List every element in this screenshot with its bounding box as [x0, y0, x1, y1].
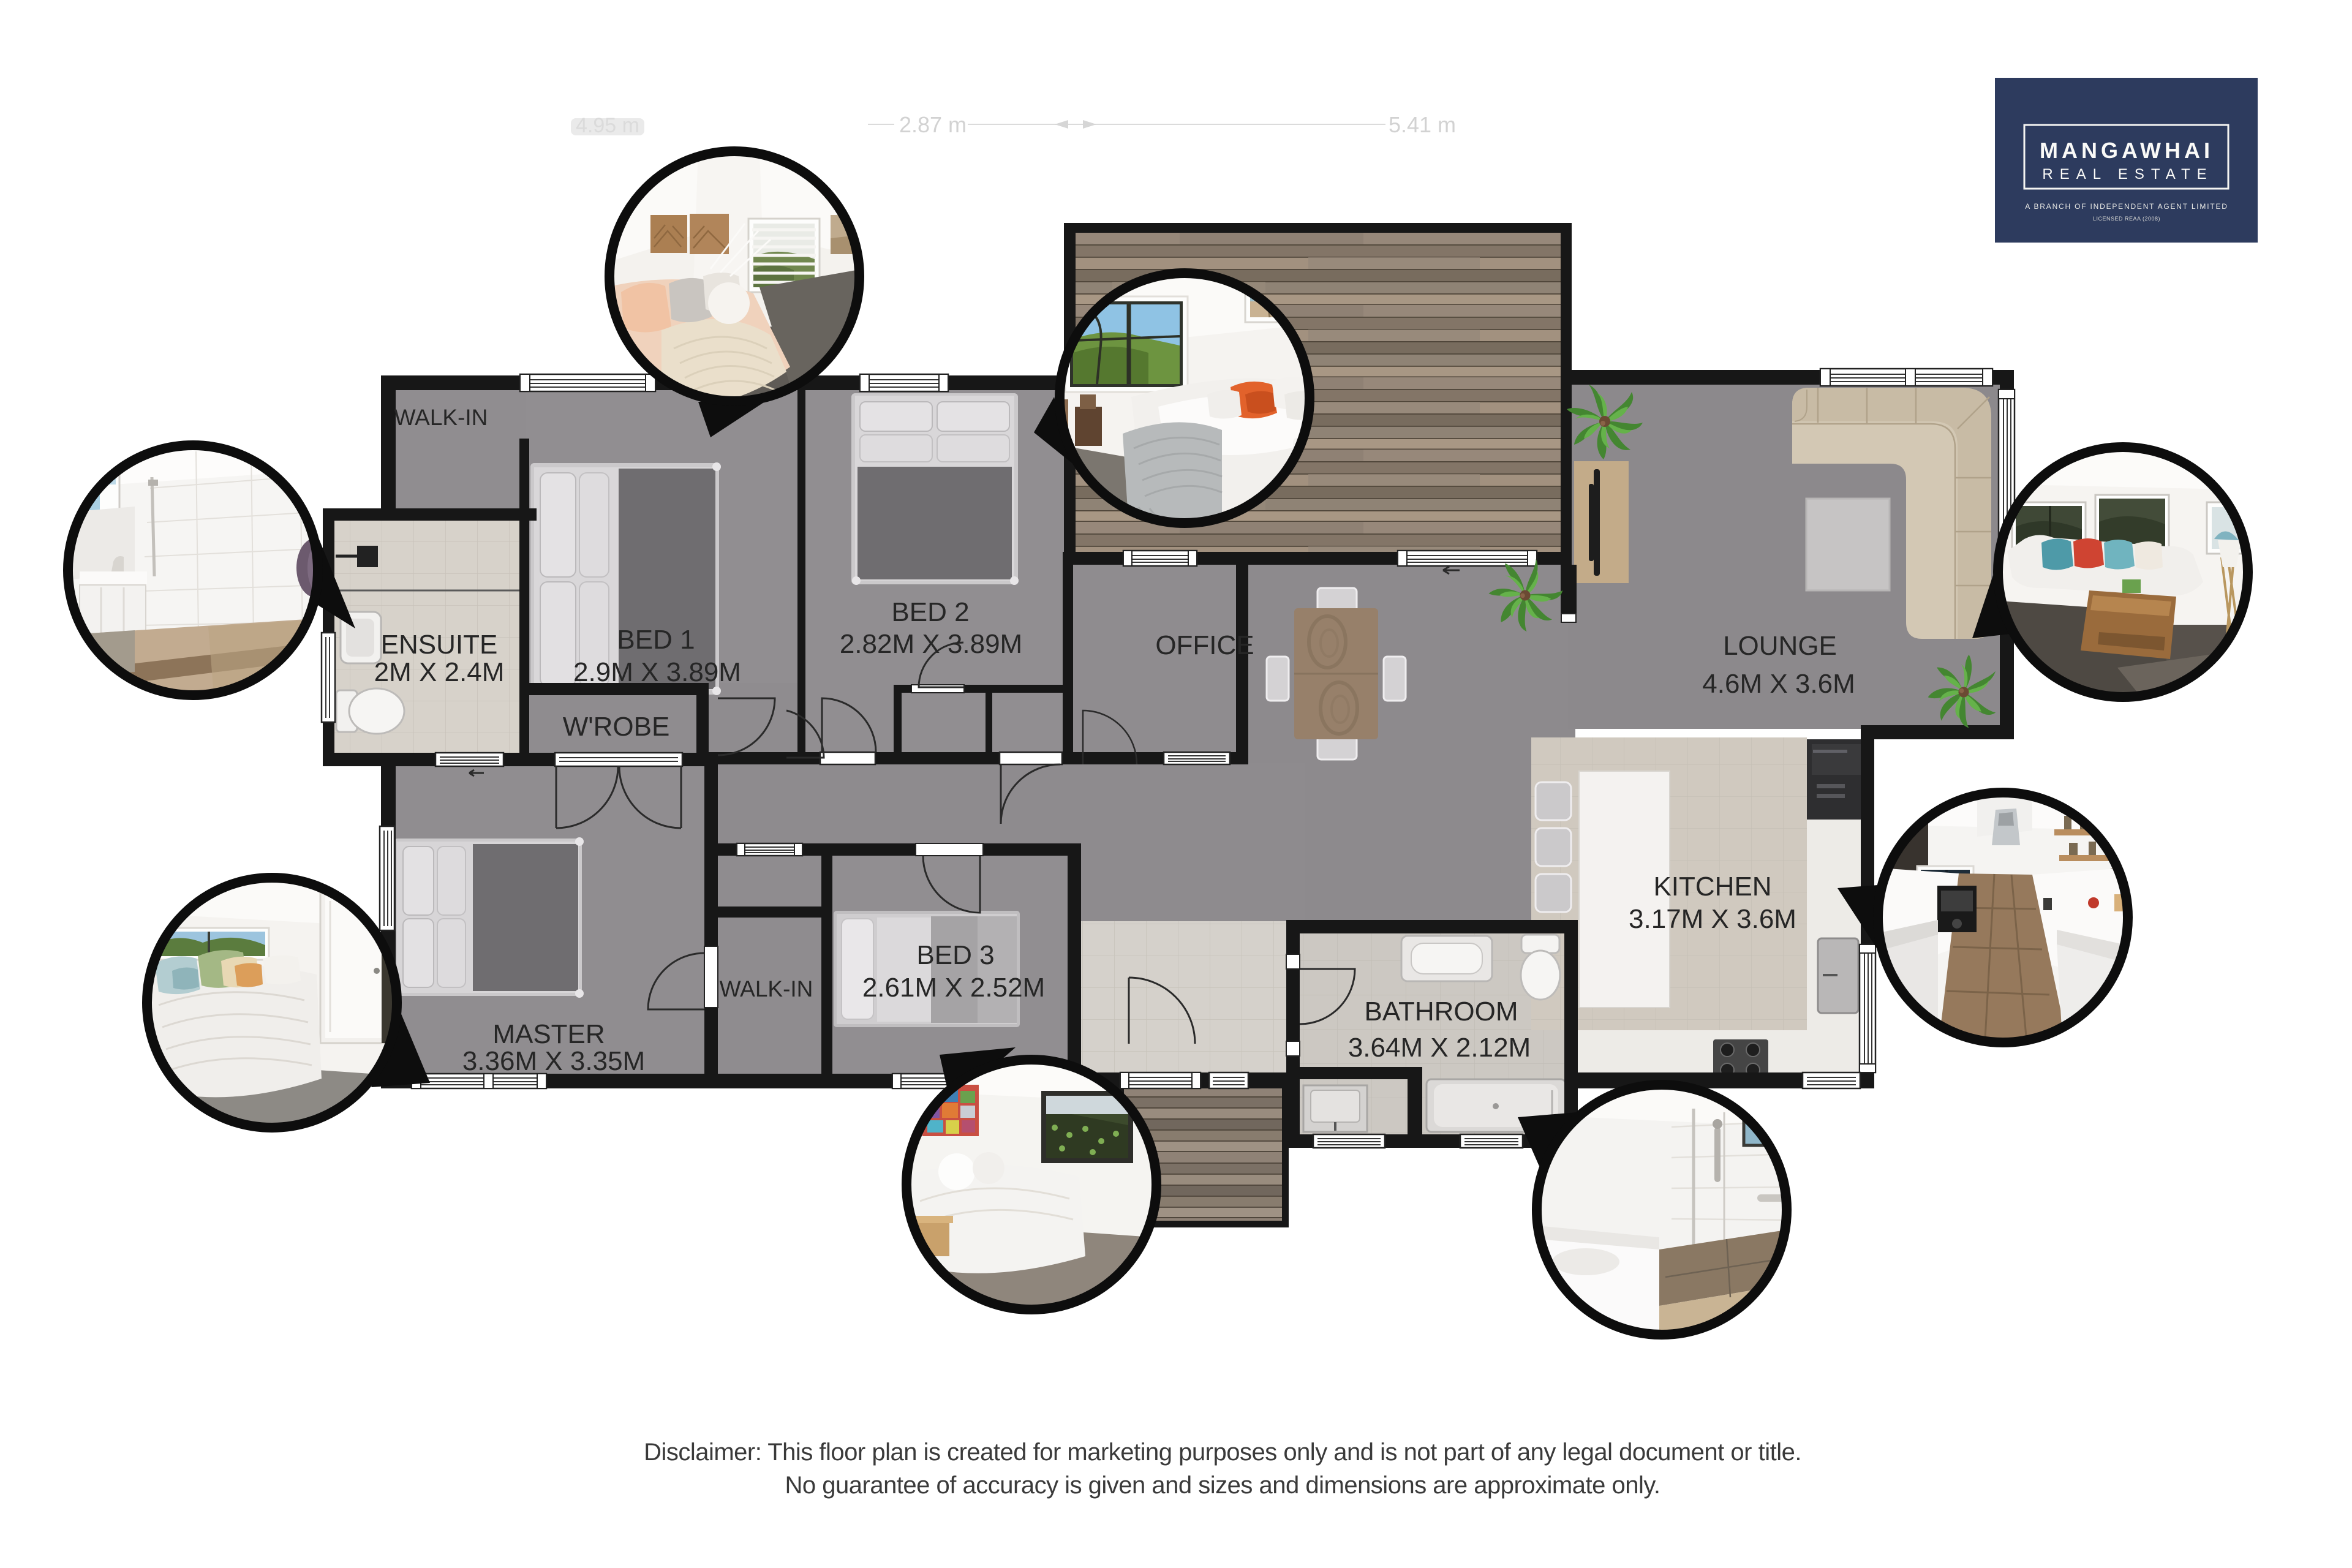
svg-text:MANGAWHAI: MANGAWHAI: [2040, 138, 2214, 163]
svg-text:WALK-IN: WALK-IN: [394, 405, 488, 430]
svg-text:2.61M X 2.52M: 2.61M X 2.52M: [862, 973, 1045, 1003]
svg-text:3.64M X 2.12M: 3.64M X 2.12M: [1348, 1033, 1531, 1063]
svg-text:A BRANCH OF INDEPENDENT AGENT: A BRANCH OF INDEPENDENT AGENT LIMITED: [2025, 202, 2228, 211]
svg-text:W'ROBE: W'ROBE: [563, 712, 670, 742]
svg-text:4.95 m: 4.95 m: [576, 114, 639, 137]
svg-text:BED 3: BED 3: [916, 940, 994, 970]
svg-text:MASTER: MASTER: [492, 1019, 605, 1049]
svg-text:ENSUITE: ENSUITE: [381, 630, 498, 660]
svg-text:2.82M X 3.89M: 2.82M X 3.89M: [840, 629, 1022, 659]
svg-text:WALK-IN: WALK-IN: [720, 976, 813, 1001]
svg-text:OFFICE: OFFICE: [1155, 630, 1254, 660]
svg-text:Disclaimer: This floor plan is: Disclaimer: This floor plan is created f…: [644, 1439, 1801, 1466]
svg-text:2.9M X 3.89M: 2.9M X 3.89M: [573, 657, 741, 687]
svg-text:5.41 m: 5.41 m: [1389, 112, 1456, 137]
svg-text:3.36M X 3.35M: 3.36M X 3.35M: [462, 1046, 645, 1076]
svg-text:2.87 m: 2.87 m: [899, 112, 967, 137]
svg-text:2M X 2.4M: 2M X 2.4M: [374, 657, 505, 687]
svg-text:4.6M X 3.6M: 4.6M X 3.6M: [1702, 669, 1855, 699]
svg-text:REAL ESTATE: REAL ESTATE: [2042, 166, 2213, 183]
svg-text:KITCHEN: KITCHEN: [1653, 872, 1771, 902]
svg-text:3.17M X 3.6M: 3.17M X 3.6M: [1629, 904, 1796, 934]
svg-text:LOUNGE: LOUNGE: [1723, 631, 1837, 661]
svg-text:BED 2: BED 2: [891, 597, 969, 627]
svg-text:BATHROOM: BATHROOM: [1365, 997, 1518, 1027]
svg-text:LICENSED REAA (2008): LICENSED REAA (2008): [2093, 216, 2160, 222]
svg-text:No guarantee of accuracy is gi: No guarantee of accuracy is given and si…: [785, 1472, 1660, 1499]
svg-text:BED 1: BED 1: [617, 625, 695, 655]
